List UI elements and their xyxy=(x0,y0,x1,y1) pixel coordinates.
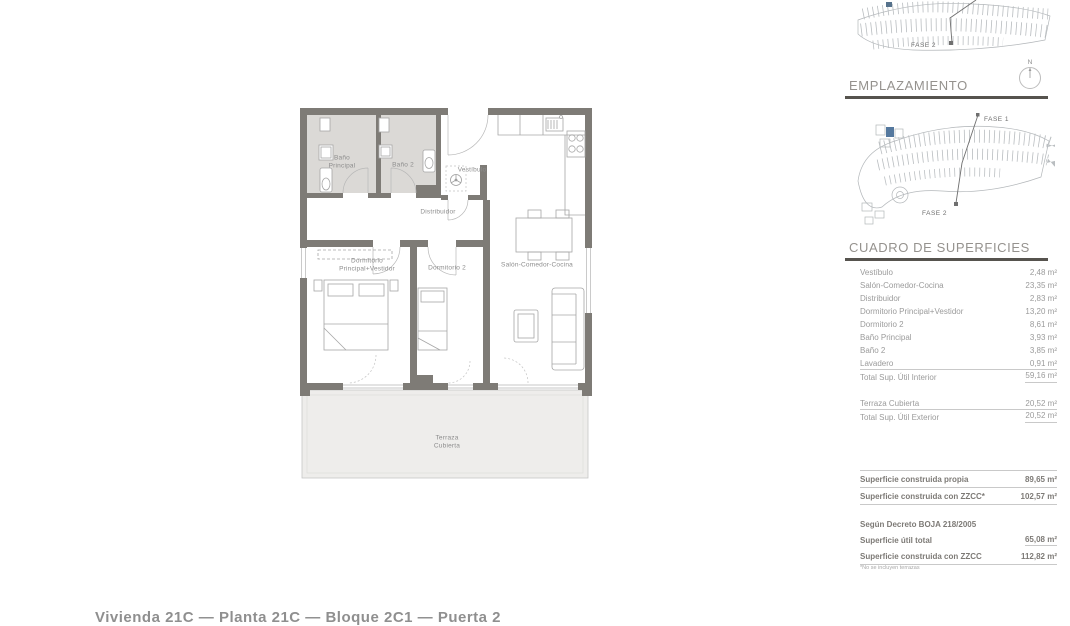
site-map-detail: FASE 1 FASE 2 xyxy=(850,103,1055,233)
fase-2-label: FASE 2 xyxy=(911,42,936,49)
sidebar: FASE 2 EMPLAZAMIENTO N xyxy=(845,0,1065,620)
unit-title: Vivienda 21C — Planta 21C — Bloque 2C1 —… xyxy=(95,609,501,626)
row-label: Total Sup. Útil Exterior xyxy=(860,412,939,423)
floor-plan: Baño Principal Baño 2 Vestíbulo Distribu… xyxy=(288,98,600,490)
row-value: 8,61 m² xyxy=(1030,319,1057,330)
room-label-text: Dormitorio 2 xyxy=(428,264,466,272)
room-label-salon: Salón-Comedor-Cocina xyxy=(501,261,573,269)
room-label-text: Cubierta xyxy=(434,442,460,450)
room-label-text: Baño xyxy=(329,155,356,163)
table-row: Distribuidor 2,83 m² xyxy=(860,291,1057,304)
site-map-overview: FASE 2 xyxy=(853,0,1053,56)
room-label-text: Salón-Comedor-Cocina xyxy=(501,261,573,269)
summary-row: Superficie construida con ZZCC 112,82 m² xyxy=(860,548,1057,565)
summary-value: 102,57 m² xyxy=(1021,492,1057,501)
table-row: Dormitorio 2 8,61 m² xyxy=(860,317,1057,330)
row-label: Baño 2 xyxy=(860,345,885,356)
summary-value: 65,08 m² xyxy=(1025,535,1057,546)
table-row: Dormitorio Principal+Vestidor 13,20 m² xyxy=(860,304,1057,317)
highlighted-unit xyxy=(886,2,892,7)
summary-row: Superficie construida propia 89,65 m² xyxy=(860,470,1057,488)
room-label-dormitorio-2: Dormitorio 2 xyxy=(428,264,466,272)
table-row: Lavadero 0,91 m² xyxy=(860,356,1057,369)
row-label: Salón-Comedor-Cocina xyxy=(860,280,944,291)
cuadro-heading: CUADRO DE SUPERFICIES xyxy=(845,240,1050,255)
room-label-text: Principal xyxy=(329,162,356,170)
row-value: 3,93 m² xyxy=(1030,332,1057,343)
fase-2-label: FASE 2 xyxy=(922,210,947,217)
fase-1-label: FASE 1 xyxy=(984,116,1009,123)
row-label: Lavadero xyxy=(860,358,893,369)
highlighted-unit xyxy=(886,127,894,137)
summary-label: Superficie útil total xyxy=(860,536,932,545)
room-label-vestibulo: Vestíbulo xyxy=(458,166,487,174)
row-value: 20,52 m² xyxy=(1025,398,1057,409)
fan-icon xyxy=(451,175,462,186)
room-label-text: Distribuidor xyxy=(420,208,455,216)
row-value: 13,20 m² xyxy=(1025,306,1057,317)
row-value: 23,35 m² xyxy=(1025,280,1057,291)
cuadro-section-header: CUADRO DE SUPERFICIES xyxy=(845,240,1050,261)
row-label: Distribuidor xyxy=(860,293,900,304)
terrace-door-arcs xyxy=(348,166,528,383)
room-label-terraza: Terraza Cubierta xyxy=(434,435,460,450)
heading-underline xyxy=(845,96,1048,99)
compass-icon: N xyxy=(1015,56,1045,92)
row-label: Total Sup. Útil Interior xyxy=(860,372,936,383)
row-label: Baño Principal xyxy=(860,332,912,343)
compass-north-letter: N xyxy=(1028,59,1033,66)
table-row: Terraza Cubierta 20,52 m² xyxy=(860,396,1057,409)
row-label: Dormitorio Principal+Vestidor xyxy=(860,306,963,317)
brochure-page: Baño Principal Baño 2 Vestíbulo Distribu… xyxy=(0,0,1070,620)
row-label: Terraza Cubierta xyxy=(860,398,919,409)
site-buildings xyxy=(862,125,903,224)
summary-block: Superficie construida propia 89,65 m² Su… xyxy=(860,470,1057,565)
surfaces-table: Vestíbulo 2,48 m² Salón-Comedor-Cocina 2… xyxy=(860,265,1057,423)
row-value: 20,52 m² xyxy=(1025,410,1057,423)
decreto-heading: Según Decreto BOJA 218/2005 xyxy=(860,517,1057,532)
room-label-text: Terraza xyxy=(434,435,460,443)
row-value: 3,85 m² xyxy=(1030,345,1057,356)
room-label-text: Baño 2 xyxy=(392,161,414,169)
phase-boundary-line xyxy=(956,115,978,203)
table-row: Salón-Comedor-Cocina 23,35 m² xyxy=(860,278,1057,291)
footnote: *No se incluyen terrazas xyxy=(860,565,920,571)
table-row: Vestíbulo 2,48 m² xyxy=(860,265,1057,278)
summary-row: Superficie construida con ZZCC* 102,57 m… xyxy=(860,488,1057,505)
room-label-bano-principal: Baño Principal xyxy=(329,155,356,170)
row-label: Dormitorio 2 xyxy=(860,319,904,330)
summary-label: Superficie construida propia xyxy=(860,475,968,484)
summary-value: 89,65 m² xyxy=(1025,475,1057,484)
room-label-dormitorio-principal: Dormitorio Principal+Vestidor xyxy=(339,258,395,273)
table-row-total-exterior: Total Sup. Útil Exterior 20,52 m² xyxy=(860,409,1057,423)
summary-row: Superficie útil total 65,08 m² xyxy=(860,532,1057,548)
room-label-text: Vestíbulo xyxy=(458,166,487,174)
summary-value: 112,82 m² xyxy=(1021,552,1057,561)
room-label-text: Dormitorio xyxy=(339,258,395,266)
summary-label: Superficie construida con ZZCC* xyxy=(860,492,985,501)
table-row: Baño Principal 3,93 m² xyxy=(860,330,1057,343)
room-label-distribuidor: Distribuidor xyxy=(420,208,455,216)
row-value: 59,16 m² xyxy=(1025,370,1057,383)
summary-label: Superficie construida con ZZCC xyxy=(860,552,982,561)
table-row-total-interior: Total Sup. Útil Interior 59,16 m² xyxy=(860,369,1057,383)
row-value: 2,48 m² xyxy=(1030,267,1057,278)
row-value: 2,83 m² xyxy=(1030,293,1057,304)
row-value: 0,91 m² xyxy=(1030,358,1057,369)
heading-underline xyxy=(845,258,1048,261)
row-label: Vestíbulo xyxy=(860,267,893,278)
table-row: Baño 2 3,85 m² xyxy=(860,343,1057,356)
room-label-text: Principal+Vestidor xyxy=(339,265,395,273)
room-label-bano-2: Baño 2 xyxy=(392,161,414,169)
